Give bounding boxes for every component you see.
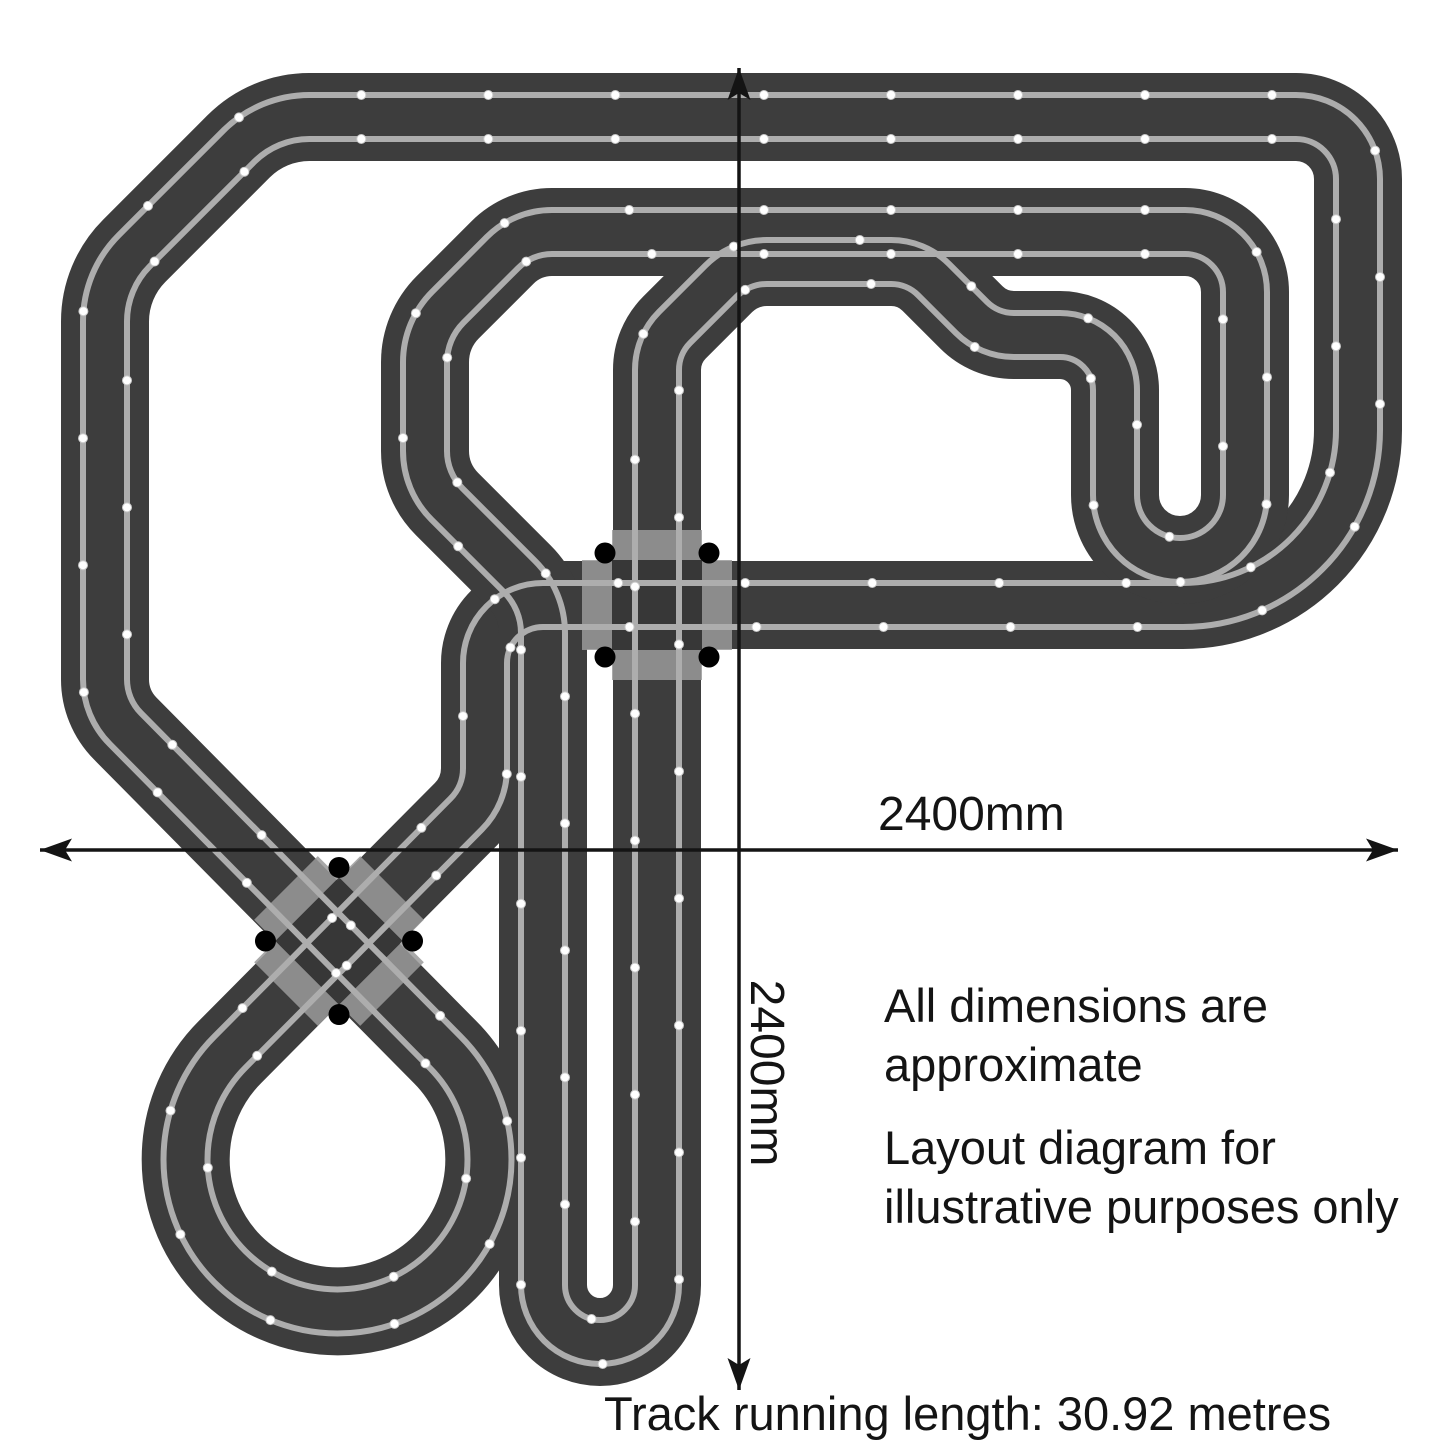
lane-stud-dot [1141,250,1150,259]
lane-stud-dot [752,623,761,632]
lane-stud-dot [332,969,341,978]
lane-stud-dot [1326,468,1335,477]
crossing-corner-dot [699,543,720,564]
lane-stud-dot [253,1051,262,1060]
lane-stud-dot [522,257,531,266]
lane-stud-dot [235,113,244,122]
lane-stud-dot [970,343,979,352]
lane-stud-dot [631,1217,640,1226]
lane-stud-dot [503,1117,512,1126]
lane-stud-dot [855,236,864,245]
width-dimension-label: 2400mm [878,791,1065,839]
lane-stud-dot [453,478,462,487]
lane-stud-dot [995,579,1004,588]
lane-stud-dot [675,640,684,649]
lane-stud-dot [561,1073,570,1082]
lane-stud-dot [176,1230,185,1239]
lane-stud-dot [561,819,570,828]
lane-stud-dot [760,91,769,100]
lane-stud-dot [561,692,570,701]
lane-stud-dot [257,831,266,840]
height-dimension-label: 2400mm [742,973,790,1173]
lane-stud-dot [1176,578,1185,587]
crossing-approach-patch [612,650,702,680]
lane-stud-dot [1371,146,1380,155]
slot-car-track-layout-diagram: 2400mm 2400mm All dimensions are approxi… [0,0,1445,1445]
lane-stud-dot [417,823,426,832]
lane-stud-dot [760,250,769,259]
lane-stud-dot [1084,314,1093,323]
lane-stud-dot [1141,135,1150,144]
lane-stud-dot [242,878,251,887]
lane-stud-dot [760,135,769,144]
lane-stud-dot [1350,522,1359,531]
lane-stud-dot [611,135,620,144]
crossing-approach-patch [612,530,702,560]
lane-stud-dot [123,630,132,639]
crossing-corner-dot [595,543,616,564]
lane-stud-dot [328,914,337,923]
lane-stud-dot [168,740,177,749]
note-illustrative-purposes: Layout diagram for illustrative purposes… [884,1118,1399,1236]
lane-stud-dot [1252,248,1261,257]
lane-stud-dot [123,376,132,385]
lane-stud-dot [1219,442,1228,451]
lane-stud-dot [760,206,769,215]
lane-stud-dot [342,961,351,970]
lane-stud-dot [867,280,876,289]
lane-stud-dot [1268,91,1277,100]
lane-stud-dot [1014,250,1023,259]
lane-stud-dot [647,250,656,259]
lane-stud-dot [587,1315,596,1324]
lane-stud-dot [887,206,896,215]
lane-stud-dot [625,206,634,215]
lane-stud-dot [967,282,976,291]
lane-stud-dot [879,623,888,632]
lane-stud-dot [266,1316,275,1325]
lane-stud-dot [517,1153,526,1162]
lane-stud-dot [79,434,88,443]
lane-stud-dot [517,1026,526,1035]
lane-stud-dot [411,309,420,318]
lane-stud-dot [144,201,153,210]
lane-stud-dot [459,712,468,721]
lane-stud-dot [611,91,620,100]
lane-stud-dot [675,513,684,522]
track-running-length-label: Track running length: 30.92 metres [604,1388,1331,1440]
lane-stud-dot [675,894,684,903]
lane-stud-dot [517,899,526,908]
lane-stud-dot [357,135,366,144]
lane-stud-dot [1089,501,1098,510]
lane-stud-dot [887,250,896,259]
lane-stud-dot [1262,500,1271,509]
lane-stud-dot [631,963,640,972]
lane-stud-dot [675,767,684,776]
lane-stud-dot [561,1200,570,1209]
lane-stud-dot [357,91,366,100]
lane-stud-dot [421,1059,430,1068]
note-dimensions-approximate: All dimensions are approximate [884,976,1268,1094]
lane-stud-dot [443,353,452,362]
lane-stud-dot [79,688,88,697]
crossing-approach-patch [582,560,612,650]
lane-stud-dot [868,579,877,588]
lane-stud-dot [741,285,750,294]
lane-stud-dot [1006,623,1015,632]
crossing-corner-dot [699,647,720,668]
lane-stud-dot [561,946,570,955]
lane-stud-dot [517,1280,526,1289]
lane-stud-dot [166,1106,175,1115]
lane-stud-dot [506,643,515,652]
lane-stud-dot [203,1163,212,1172]
lane-stud-dot [484,91,493,100]
lane-stud-dot [399,434,408,443]
lane-stud-dot [631,709,640,718]
lane-stud-dot [346,921,355,930]
lane-stud-dot [625,623,634,632]
lane-stud-dot [631,582,640,591]
lane-stud-dot [639,329,648,338]
lane-stud-dot [1258,606,1267,615]
lane-stud-dot [490,595,499,604]
lane-stud-dot [436,1011,445,1020]
lane-stud-dot [123,503,132,512]
lane-stud-dot [153,788,162,797]
lane-stud-dot [79,561,88,570]
lane-stud-dot [485,1240,494,1249]
lane-stud-dot [887,91,896,100]
lane-stud-dot [1332,342,1341,351]
lane-stud-dot [1332,215,1341,224]
lane-stud-dot [390,1319,399,1328]
lane-stud-dot [675,1021,684,1030]
crossing-corner-dot [595,647,616,668]
lane-stud-dot [1219,315,1228,324]
lane-stud-dot [1086,374,1095,383]
lane-stud-dot [631,836,640,845]
lane-stud-dot [741,579,750,588]
lane-stud-dot [1376,273,1385,282]
lane-stud-dot [517,772,526,781]
lane-stud-dot [1268,135,1277,144]
lane-stud-dot [150,257,159,266]
crossing-core [612,560,702,650]
lane-stud-dot [541,569,550,578]
lane-stud-dot [729,242,738,251]
lane-stud-dot [1376,400,1385,409]
lane-stud-dot [1141,206,1150,215]
lane-stud-dot [462,1174,471,1183]
lane-stud-dot [238,1004,247,1013]
lane-stud-dot [1246,563,1255,572]
lane-stud-dot [675,1275,684,1284]
lane-stud-dot [631,1090,640,1099]
lane-stud-dot [240,167,249,176]
lane-stud-dot [1133,623,1142,632]
lane-stud-dot [432,871,441,880]
lane-stud-dot [500,219,509,228]
lane-stud-dot [1263,373,1272,382]
lane-stud-dot [502,770,511,779]
lane-stud-dot [79,307,88,316]
lane-stud-dot [1014,206,1023,215]
lane-stud-dot [631,455,640,464]
lane-stud-dot [1165,532,1174,541]
lane-stud-dot [389,1272,398,1281]
lane-stud-dot [675,1148,684,1157]
lane-stud-dot [887,135,896,144]
lane-stud-dot [598,1360,607,1369]
crossing-approach-patch [702,560,732,650]
lane-stud-dot [1133,420,1142,429]
lane-stud-dot [1122,579,1131,588]
lane-stud-dot [454,542,463,551]
lane-stud-dot [1014,91,1023,100]
lane-stud-dot [614,579,623,588]
lane-stud-dot [517,645,526,654]
lane-stud-dot [267,1267,276,1276]
lane-stud-dot [1141,91,1150,100]
lane-stud-dot [484,135,493,144]
lane-stud-dot [675,386,684,395]
lane-stud-dot [1014,135,1023,144]
